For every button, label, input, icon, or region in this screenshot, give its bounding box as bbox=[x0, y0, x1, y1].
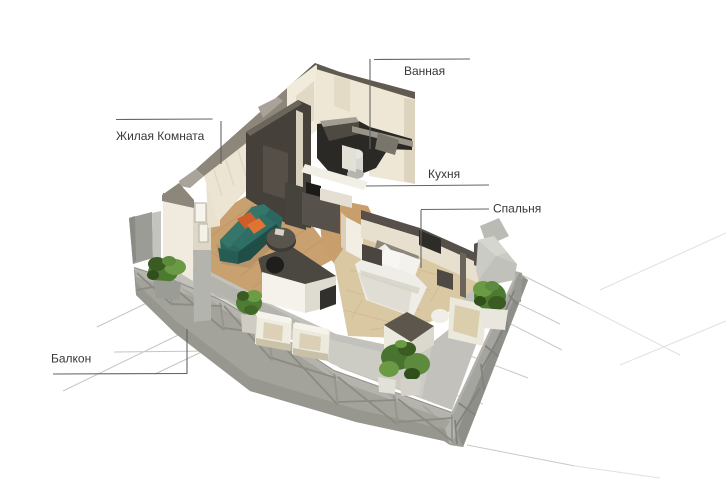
svg-text:Кухня: Кухня bbox=[428, 167, 460, 181]
svg-text:Жилая Комната: Жилая Комната bbox=[116, 129, 205, 143]
svg-text:Балкон: Балкон bbox=[51, 352, 91, 366]
svg-text:Спальня: Спальня bbox=[493, 202, 541, 216]
svg-text:Ванная: Ванная bbox=[404, 64, 445, 78]
